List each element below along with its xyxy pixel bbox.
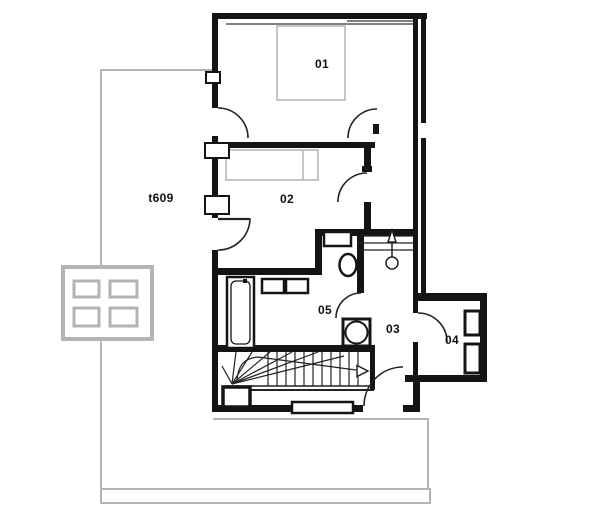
room-label-01: 01 bbox=[315, 57, 329, 71]
door-arc-hall-room02 bbox=[338, 173, 367, 202]
door-arc-hall-room01 bbox=[348, 109, 377, 138]
washing-machine bbox=[343, 319, 370, 346]
stair-arrival-indicator bbox=[358, 230, 413, 269]
stair-walkline bbox=[237, 357, 368, 380]
room-label-04: 04 bbox=[445, 333, 459, 347]
door-arc-terrace-room02 bbox=[218, 218, 250, 250]
top-wall-inner-line bbox=[226, 21, 413, 24]
bathtub bbox=[227, 277, 254, 348]
door-swing-arcs bbox=[218, 108, 447, 406]
terrace-label: t609 bbox=[148, 191, 173, 205]
staircase bbox=[222, 352, 374, 390]
room-label-05: 05 bbox=[318, 303, 332, 317]
room-label-02: 02 bbox=[280, 192, 294, 206]
bed-room-02 bbox=[226, 150, 318, 180]
floor-plan-page: 01 02 03 04 05 t609 bbox=[0, 0, 600, 521]
door-arc-hall-room04 bbox=[418, 313, 447, 342]
under-stair-closet bbox=[223, 387, 250, 407]
toilet bbox=[324, 232, 357, 276]
door-arc-terrace-room01 bbox=[218, 108, 248, 138]
room04-shelves bbox=[465, 311, 480, 373]
washbasins bbox=[262, 279, 308, 293]
room-label-03: 03 bbox=[386, 322, 400, 336]
door-arc-hall-bathroom bbox=[336, 293, 361, 318]
patio-table-symbol bbox=[63, 267, 152, 339]
floor-plan-drawing bbox=[0, 0, 600, 521]
bed-room-01 bbox=[277, 26, 345, 100]
interior-walls bbox=[218, 124, 413, 390]
